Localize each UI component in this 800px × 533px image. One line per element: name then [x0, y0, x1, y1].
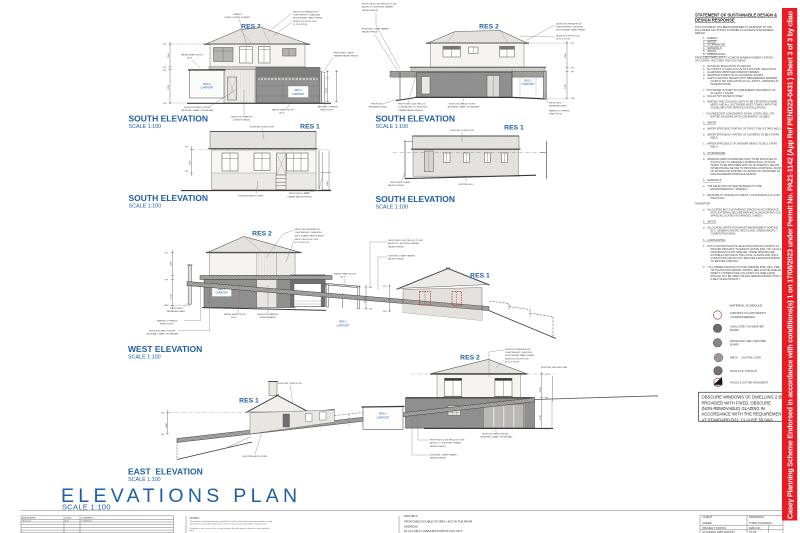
svg-text:RES 1: RES 1 — [470, 273, 490, 280]
svg-text:WITH SUBMIT PAINT FINISH: WITH SUBMIT PAINT FINISH — [505, 354, 534, 357]
svg-text:A RECYCLED PRODUCT: A RECYCLED PRODUCT — [711, 277, 741, 281]
svg-text:ADDRESS: ADDRESS — [404, 524, 418, 528]
svg-text:ACCORDANCE WITH THE REQUIREMEN: ACCORDANCE WITH THE REQUIREMENTS — [702, 412, 787, 417]
svg-text:PAINTED CYPRESS: PAINTED CYPRESS — [157, 320, 178, 323]
svg-text:CARPORT: CARPORT — [200, 86, 213, 90]
svg-text:@ 22.5 PITCH: @ 22.5 PITCH — [295, 242, 310, 244]
svg-text:6. LANDSCAPING: 6. LANDSCAPING — [703, 238, 726, 242]
svg-text:SELECTED BRICK WORK: SELECTED BRICK WORK — [482, 434, 509, 436]
svg-text:RES 1: RES 1 — [294, 88, 302, 92]
svg-text:AMENDMENT: AMENDMENT — [22, 517, 37, 520]
svg-text:FASCIA & GUTTER MONUMENT: FASCIA & GUTTER MONUMENT — [730, 380, 769, 384]
svg-text:@5 F: @5 F — [340, 277, 346, 279]
svg-text:5. WASTE: 5. WASTE — [703, 220, 717, 224]
svg-text:BATTEN HOLDERS WITH LOW ENERGY: BATTEN HOLDERS WITH LOW ENERGY GLOBES — [711, 114, 771, 118]
svg-text:2745: 2745 — [171, 293, 173, 299]
svg-text:SCALE 1:100: SCALE 1:100 — [376, 205, 409, 211]
svg-text:WELS: WELS — [711, 136, 719, 140]
svg-text:CARPORT: CARPORT — [521, 82, 534, 86]
svg-text:SELECTED RENDER ON: SELECTED RENDER ON — [556, 24, 582, 26]
svg-text:RES 2: RES 2 — [252, 231, 272, 238]
svg-text:SELECTED RENDER ON: SELECTED RENDER ON — [293, 12, 319, 14]
svg-text:EXISTING 1.9M/H TIMBER: EXISTING 1.9M/H TIMBER — [430, 455, 457, 457]
svg-text:CHING BOARDS: CHING BOARDS — [233, 119, 250, 122]
svg-text:BOARD: BOARD — [730, 343, 739, 347]
svg-text:RES 1: RES 1 — [339, 320, 347, 324]
svg-text:2590: 2590 — [171, 260, 173, 266]
svg-text:@5 F: @5 F — [279, 113, 285, 115]
svg-text:SELECTED BRICK WORK: SELECTED BRICK WORK — [449, 104, 476, 106]
svg-text:"AUSTRAL CHARL OR SIMILAR": "AUSTRAL CHARL OR SIMILAR" — [447, 106, 480, 109]
svg-text:SCALE 1:100: SCALE 1:100 — [128, 477, 161, 483]
svg-text:g. SOLAR HOT WATER SYSTEM: g. SOLAR HOT WATER SYSTEM — [703, 94, 743, 98]
svg-text:SCALE 1:100: SCALE 1:100 — [62, 503, 111, 512]
svg-text:PROVIDED WITH FIXED, OBSCURE: PROVIDED WITH FIXED, OBSCURE — [702, 400, 772, 405]
svg-text:PROPOSED: PROPOSED — [371, 104, 384, 106]
svg-text:@5 F: @5 F — [187, 58, 193, 60]
svg-text:SOUTH ELEVATION: SOUTH ELEVATION — [376, 194, 456, 204]
svg-text:WITH SUBMIT PAINT FINISH: WITH SUBMIT PAINT FINISH — [556, 29, 585, 32]
svg-text:PALING FENCE: PALING FENCE — [388, 258, 404, 261]
svg-text:without prior consent given. A: without prior consent given. Alterations… — [190, 523, 268, 526]
svg-text:RES 2: RES 2 — [479, 24, 499, 31]
svg-text:PALING FENCE: PALING FENCE — [430, 445, 446, 448]
svg-text:PROPOSED 0.4M TRELLIS TO BE: PROPOSED 0.4M TRELLIS TO BE — [362, 4, 397, 6]
svg-text:"AUSTRAL CHARL OR SIMILAR": "AUSTRAL CHARL OR SIMILAR" — [480, 436, 513, 439]
svg-text:PRACTICAL: PRACTICAL — [711, 196, 726, 200]
svg-text:@ 22.5 PITCH: @ 22.5 PITCH — [556, 39, 571, 41]
svg-text:FOLLOWING KEY POINTS IN ORDER: FOLLOWING KEY POINTS IN ORDER TO ACHIEVE… — [695, 28, 774, 32]
svg-text:PALING FENCE: PALING FENCE — [362, 9, 378, 12]
svg-text:TIMBER PALING FENCE: TIMBER PALING FENCE — [287, 195, 312, 198]
svg-text:PROPOSED 1.8M/H: PROPOSED 1.8M/H — [289, 193, 309, 195]
svg-text:METAL SHEET ROOF: METAL SHEET ROOF — [224, 313, 246, 316]
svg-text:CARPORT: CARPORT — [215, 291, 228, 295]
svg-text:SELECTED PAINTED: SELECTED PAINTED — [231, 116, 253, 119]
svg-text:1 PA/M/H: 1 PA/M/H — [232, 13, 242, 16]
svg-text:EXISTING FILL: EXISTING FILL — [458, 184, 474, 186]
svg-text:34 LILY-DILLY AVENUE DOVETON V: 34 LILY-DILLY AVENUE DOVETON VIC 3177 — [404, 529, 463, 533]
svg-text:RETAINING WALL: RETAINING WALL — [549, 105, 568, 108]
svg-text:EAST ELEVATION: EAST ELEVATION — [128, 467, 203, 477]
svg-text:EXISTING BRICK WORK: EXISTING BRICK WORK — [243, 456, 268, 458]
svg-text:2590: 2590 — [166, 422, 168, 428]
svg-text:2700: 2700 — [326, 87, 328, 93]
svg-text:2590: 2590 — [168, 52, 170, 58]
svg-text:PA2023-01: PA2023-01 — [22, 520, 31, 523]
svg-text:DRAWINGS:: DRAWINGS: — [749, 515, 765, 519]
svg-text:@5 F: @5 F — [231, 317, 237, 319]
svg-text:ADDED TO EXISTING TIMBER: ADDED TO EXISTING TIMBER — [362, 6, 393, 9]
svg-text:CLIENT:: CLIENT: — [703, 515, 713, 519]
svg-text:COMMENTS: COMMENTS — [81, 521, 93, 523]
svg-text:CARPORT: CARPORT — [377, 415, 390, 419]
svg-text:PAINTED CYPRESS: PAINTED CYPRESS — [549, 110, 570, 113]
svg-text:SCALE 1:100: SCALE 1:100 — [376, 124, 409, 130]
svg-text:PALING FENCE: PALING FENCE — [388, 184, 404, 187]
svg-text:WITH SUBMIT PAINT FINISH: WITH SUBMIT PAINT FINISH — [293, 17, 322, 20]
svg-text:2745: 2745 — [168, 84, 170, 90]
svg-text:RES 2: RES 2 — [460, 355, 480, 362]
svg-text:@ 22.5 PITCH: @ 22.5 PITCH — [505, 362, 520, 364]
svg-text:DWG NO: DWG NO — [749, 526, 760, 530]
svg-text:SELECTED RENDER ON: SELECTED RENDER ON — [505, 349, 531, 351]
svg-text:LIGHTWEIGHT CLADDING: LIGHTWEIGHT CLADDING — [556, 26, 583, 29]
svg-text:EXISTING TILED ROOF: EXISTING TILED ROOF — [450, 130, 475, 132]
svg-text:SELECTED ROOF TILE: SELECTED ROOF TILE — [556, 36, 580, 38]
svg-text:PROJECT:: PROJECT: — [404, 514, 418, 518]
svg-text:LIVING BOARDS: LIVING BOARDS — [259, 316, 277, 319]
svg-text:LIGHTWEIGHT CLADDING: LIGHTWEIGHT CLADDING — [293, 14, 320, 17]
svg-text:RES 2: RES 2 — [203, 82, 211, 86]
svg-text:PROPOSED 0.4M TRELLIS: PROPOSED 0.4M TRELLIS — [398, 104, 426, 106]
svg-text:PROJECT STATUS: PROJECT STATUS — [703, 526, 727, 530]
svg-text:WOODLAND GREY WEATHER: WOODLAND GREY WEATHER — [730, 339, 766, 343]
svg-text:PROPOSED 1.8M/H: PROPOSED 1.8M/H — [334, 53, 354, 55]
svg-text:TO ENSURE SURVIVAL: TO ENSURE SURVIVAL — [711, 259, 739, 263]
svg-text:GUIDELINES FOR SERVICES INSTAL: GUIDELINES FOR SERVICES INSTALLATIONS — [711, 106, 766, 110]
svg-text:RES 1: RES 1 — [379, 412, 387, 416]
svg-text:SELECTED BRICK WORK: SELECTED BRICK WORK — [149, 331, 176, 333]
svg-text:EXISTING 1.9M/H TIMBER: EXISTING 1.9M/H TIMBER — [362, 29, 389, 31]
svg-text:SOUTH ELEVATION: SOUTH ELEVATION — [129, 114, 209, 124]
svg-text:PALING FENCE: PALING FENCE — [388, 245, 404, 248]
svg-text:PROPOSED 0.4M TRELLIS TO BE: PROPOSED 0.4M TRELLIS TO BE — [430, 440, 465, 442]
svg-text:ENVIRONMENTALLY FRIENDLY: ENVIRONMENTALLY FRIENDLY — [711, 187, 749, 191]
svg-text:"AUSTRAL CHARL OR SIMILAR": "AUSTRAL CHARL OR SIMILAR" — [146, 333, 179, 336]
svg-text:PROPOSED: PROPOSED — [170, 308, 183, 310]
svg-text:SELECTED RENDER ON: SELECTED RENDER ON — [295, 229, 321, 231]
svg-text:SURFMIST ON LIGHTWEIGHT: SURFMIST ON LIGHTWEIGHT — [730, 311, 766, 315]
svg-text:BOARD: BOARD — [730, 328, 739, 332]
svg-text:2745: 2745 — [565, 83, 567, 89]
svg-text:3. STORMWATER: 3. STORMWATER — [703, 151, 725, 155]
svg-text:PALING FENCE: PALING FENCE — [362, 31, 378, 34]
svg-text:EXISTING GROUND LINE: EXISTING GROUND LINE — [541, 367, 568, 369]
svg-text:SHALE GREY ON WEATHER: SHALE GREY ON WEATHER — [730, 324, 764, 328]
svg-text:EXISTING BRICK WORK: EXISTING BRICK WORK — [239, 196, 264, 198]
svg-text:BRICK AUSTRAL CHAR: BRICK AUSTRAL CHAR — [730, 356, 761, 360]
svg-text:GFL: GFL — [369, 309, 373, 311]
svg-text:SCALE 1:100: SCALE 1:100 — [129, 124, 162, 130]
svg-text:AZEEM: AZEEM — [703, 521, 713, 525]
svg-text:(NON-REMOVABLE) GLAZING IN: (NON-REMOVABLE) GLAZING IN — [702, 406, 765, 411]
svg-text:CARPORT: CARPORT — [292, 92, 305, 96]
svg-text:SELECTED BRICK WORK: SELECTED BRICK WORK — [184, 107, 211, 109]
svg-text:RETAINING WALL: RETAINING WALL — [167, 310, 186, 313]
svg-text:SOUTH ELEVATION: SOUTH ELEVATION — [129, 193, 209, 203]
svg-text:2. WATER: 2. WATER — [703, 121, 716, 125]
svg-text:METAL SHEET ROOF: METAL SHEET ROOF — [181, 54, 203, 57]
svg-text:TRANSPORT: TRANSPORT — [695, 201, 711, 205]
svg-text:a. WATER EFFICIENCY RATING O: a. WATER EFFICIENCY RATING OF TAPS TO BE… — [703, 127, 781, 131]
svg-text:"AUSTRAL CHARL OR SIMILAR": "AUSTRAL CHARL OR SIMILAR" — [181, 109, 214, 112]
svg-text:PENETRATIONS): PENETRATIONS) — [711, 82, 732, 86]
svg-text:SOUTH ELEVATION: SOUTH ELEVATION — [376, 114, 456, 124]
svg-text:NOTES:: NOTES: — [190, 516, 200, 520]
svg-text:MATERIAL SCHEDULE: MATERIAL SCHEDULE — [730, 304, 763, 308]
svg-text:TIMBER PALING FENCE: TIMBER PALING FENCE — [398, 109, 423, 112]
svg-text:EXISTING TILED ROOF: EXISTING TILED ROOF — [278, 383, 303, 385]
svg-text:OF 6 STARS. INCLUDES THE FOLLO: OF 6 STARS. INCLUDES THE FOLLOWING: — [695, 58, 747, 62]
svg-text:EXISTING TILED ROOF: EXISTING TILED ROOF — [250, 127, 275, 129]
svg-text:CLADDING/RENDER.: CLADDING/RENDER. — [730, 315, 756, 319]
svg-text:PROPOSED 1.8M/H: PROPOSED 1.8M/H — [390, 182, 410, 184]
svg-text:ROOF TILE TWILIGHT: ROOF TILE TWILIGHT — [730, 369, 757, 373]
svg-text:SPACE ALLOCATED IN GARAGES / S: SPACE ALLOCATED IN GARAGES / SHEDS — [711, 213, 763, 217]
svg-text:PER ENGINEERS DRAINAGE DESIGN: PER ENGINEERS DRAINAGE DESIGN — [711, 172, 757, 176]
svg-text:Contractor to also must not al: Contractor to also must not alter or cop… — [190, 527, 270, 530]
svg-text:LIGHTWEIGHT CLADDING: LIGHTWEIGHT CLADDING — [295, 231, 322, 234]
svg-text:PINE POSTS: PINE POSTS — [160, 324, 174, 326]
svg-text:CARPORT: CARPORT — [336, 323, 349, 327]
svg-text:PALING FENCE: PALING FENCE — [430, 457, 446, 460]
svg-text:PAINTED CYPRESS: PAINTED CYPRESS — [318, 106, 339, 109]
svg-text:PROPOSED DOUBLE STOREY UNIT IN: PROPOSED DOUBLE STOREY UNIT IN THE REAR — [404, 520, 472, 524]
svg-text:AT STANDARD B22, CLAUSE 55.04-: AT STANDARD B22, CLAUSE 55.04-6. — [702, 417, 774, 422]
svg-text:SELECTED ROOF TILE: SELECTED ROOF TILE — [293, 21, 317, 23]
svg-text:COMMENTS: COMMENTS — [81, 518, 94, 520]
svg-text:WEST ELEVATION: WEST ELEVATION — [128, 344, 202, 354]
svg-text:TOWN PLANNING: TOWN PLANNING — [749, 521, 772, 525]
svg-text:ADDED TO EXISTING TIMBER: ADDED TO EXISTING TIMBER — [430, 442, 461, 445]
svg-text:METAL SHEET ROOF: METAL SHEET ROOF — [272, 109, 294, 112]
svg-text:TO BE ADDED TO EXISTING: TO BE ADDED TO EXISTING — [398, 106, 427, 109]
svg-text:PROPOSED: PROPOSED — [549, 103, 562, 105]
svg-text:PROPOSED 0.4M TRELLIS TO BE: PROPOSED 0.4M TRELLIS TO BE — [388, 240, 423, 242]
svg-text:DESIGN RESPONSE: DESIGN RESPONSE — [695, 18, 735, 23]
svg-text:4. MATERIALS: 4. MATERIALS — [703, 178, 722, 182]
svg-text:ADDED TO EXISTING TIMBER: ADDED TO EXISTING TIMBER — [388, 242, 419, 245]
svg-text:NGL: NGL — [383, 311, 387, 313]
svg-text:TIMBER PALING FENCE: TIMBER PALING FENCE — [334, 55, 359, 58]
svg-text:RES 2: RES 2 — [524, 79, 532, 83]
svg-text:RES 1: RES 1 — [300, 124, 320, 131]
svg-text:PINE POSTS: PINE POSTS — [549, 114, 563, 116]
svg-text:2590: 2590 — [540, 386, 542, 392]
svg-text:@ 22.5 PITCH: @ 22.5 PITCH — [293, 24, 308, 26]
svg-text:OVERLOOKING SCREEN: OVERLOOKING SCREEN — [224, 17, 250, 19]
svg-text:Casey Planning Scheme Endorsed: Casey Planning Scheme Endorsed in accord… — [786, 10, 795, 519]
svg-text:SELECTED ROOF TILE: SELECTED ROOF TILE — [295, 239, 319, 241]
svg-text:RETAINING WALL: RETAINING WALL — [369, 106, 388, 109]
svg-text:FGL: FGL — [383, 286, 387, 288]
svg-text:2745: 2745 — [540, 414, 542, 420]
svg-text:LIGHTWEIGHT CLADDING: LIGHTWEIGHT CLADDING — [505, 351, 532, 354]
svg-text:FCL: FCL — [369, 287, 373, 289]
svg-text:2590: 2590 — [565, 52, 567, 58]
svg-text:DESIGN:: DESIGN: — [695, 31, 706, 35]
svg-text:SCALE 1:100: SCALE 1:100 — [128, 355, 161, 361]
svg-text:1800: 1800 — [327, 180, 329, 186]
svg-text:2590: 2590 — [190, 160, 192, 166]
svg-text:OBSCURE WINDOWS OF DWELLING 2: OBSCURE WINDOWS OF DWELLING 2 BE — [702, 395, 785, 400]
svg-text:AUG: AUG — [65, 520, 70, 523]
svg-text:RES 1: RES 1 — [504, 125, 524, 132]
svg-text:RES 1: RES 1 — [239, 398, 259, 405]
svg-text:SELECTED ROOF TILE: SELECTED ROOF TILE — [505, 359, 529, 361]
svg-text:METAL SHEET ROOF: METAL SHEET ROOF — [334, 273, 356, 276]
svg-text:SCALE 1:100: SCALE 1:100 — [129, 204, 162, 210]
svg-text:EXISTING 1.9M/H TIMBER: EXISTING 1.9M/H TIMBER — [388, 256, 415, 258]
svg-text:ISSUE: ISSUE — [65, 518, 72, 520]
svg-text:WITH SUBMIT PAINT FINISH: WITH SUBMIT PAINT FINISH — [295, 234, 324, 237]
svg-text:WELS: WELS — [711, 145, 719, 149]
svg-text:office.: office. — [190, 530, 195, 532]
svg-text:PINE POSTS: PINE POSTS — [320, 110, 334, 112]
svg-text:COMPOSTING BINS): COMPOSTING BINS) — [711, 232, 736, 236]
